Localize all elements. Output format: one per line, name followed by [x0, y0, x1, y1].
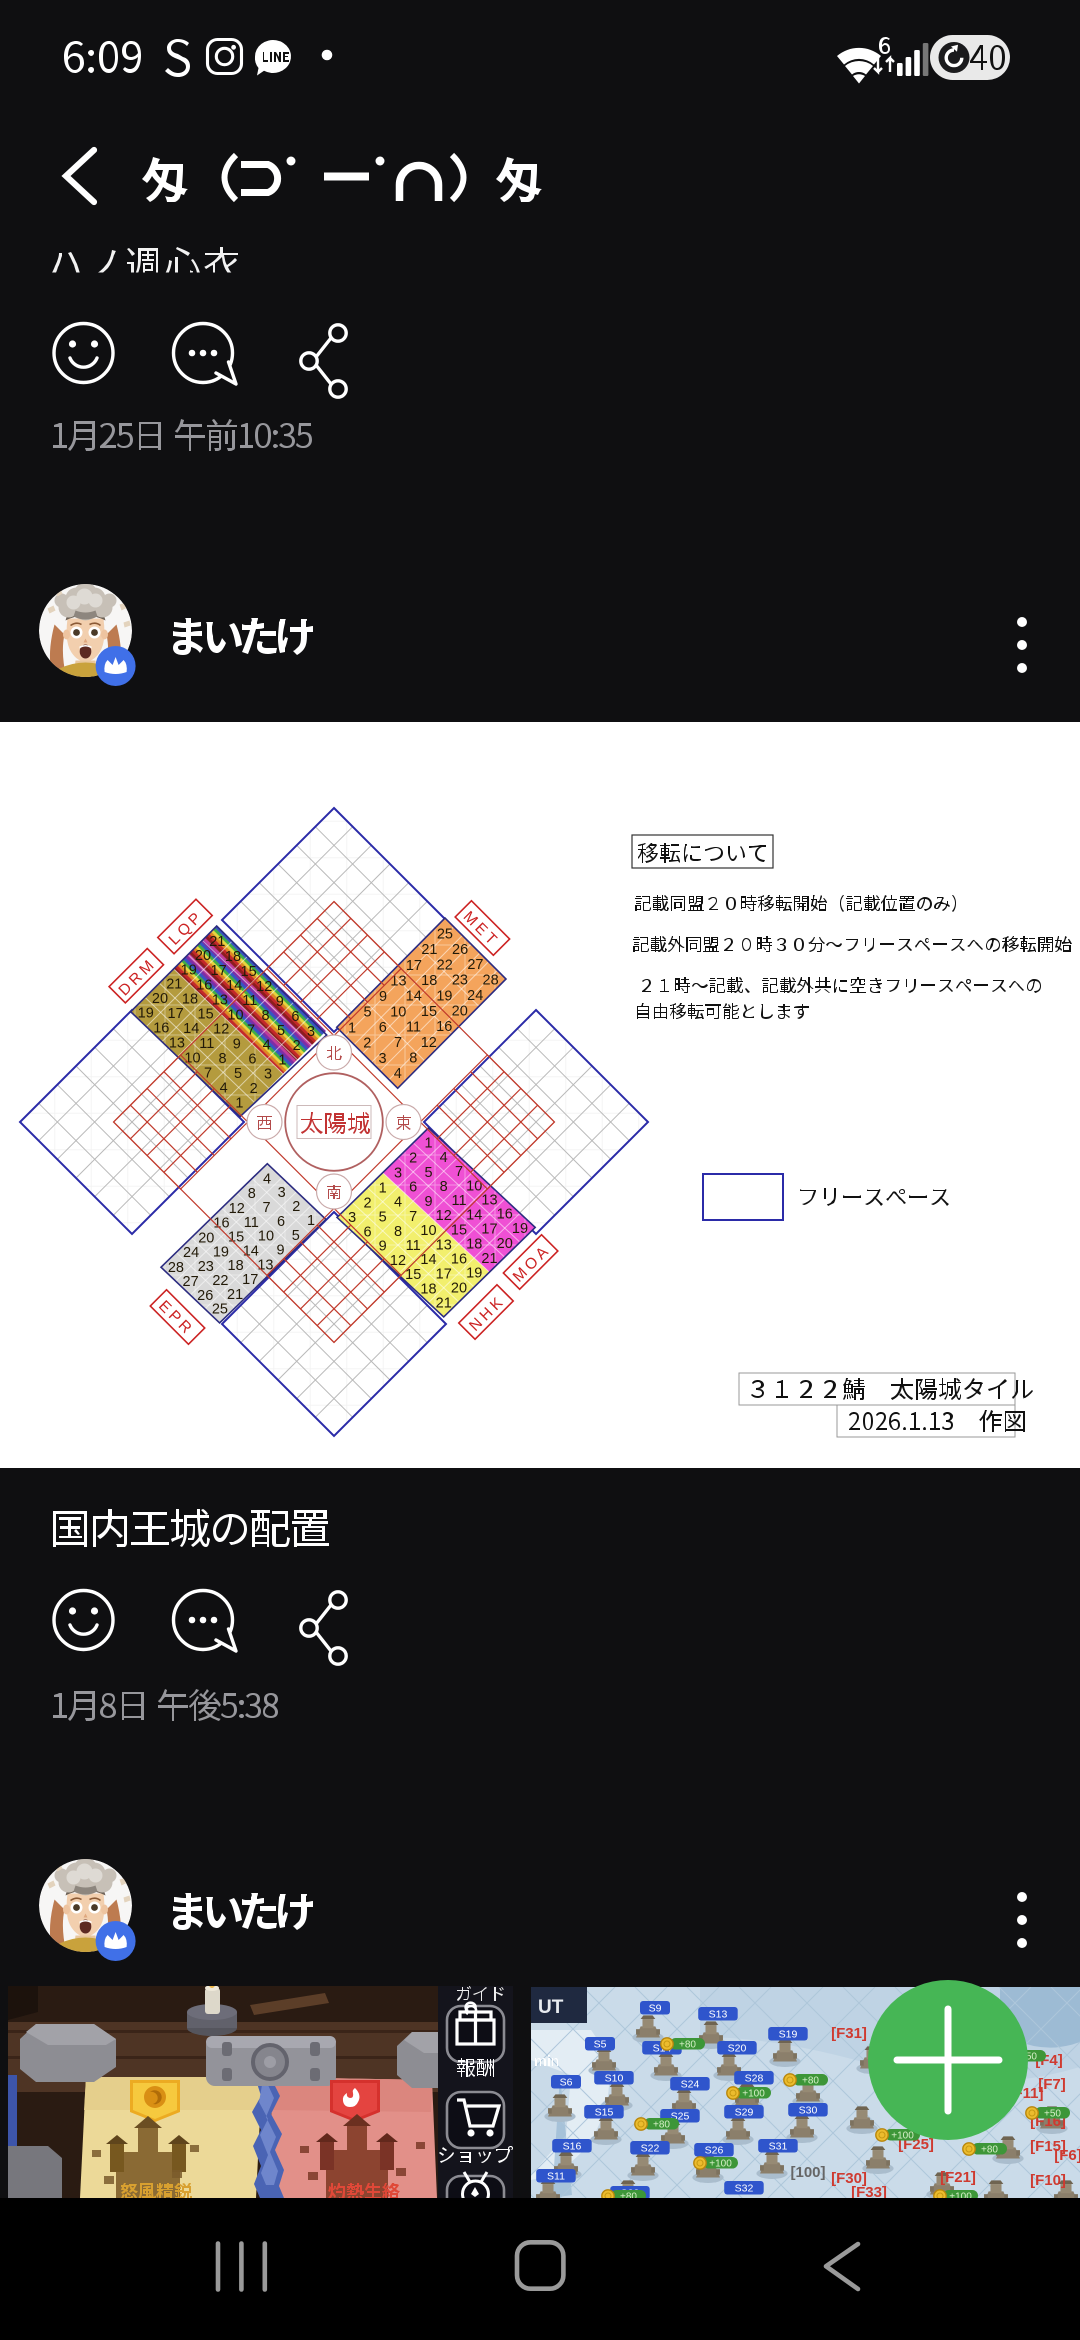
svg-text:13: 13	[390, 974, 406, 990]
svg-text:S31: S31	[769, 2141, 788, 2153]
svg-text:S15: S15	[595, 2107, 614, 2119]
svg-text:28: 28	[168, 1260, 184, 1276]
svg-text:17: 17	[436, 1266, 452, 1282]
svg-text:5: 5	[277, 1023, 285, 1039]
svg-text:S28: S28	[745, 2073, 764, 2085]
svg-text:1: 1	[307, 1213, 315, 1229]
svg-text:21: 21	[209, 934, 225, 950]
svg-text:16: 16	[196, 977, 212, 993]
svg-text:18: 18	[420, 1281, 436, 1297]
svg-text:2: 2	[292, 1199, 300, 1215]
svg-text:16: 16	[153, 1020, 169, 1036]
svg-text:S29: S29	[735, 2107, 754, 2119]
svg-text:11: 11	[242, 993, 257, 1009]
svg-text:22: 22	[437, 958, 453, 974]
svg-text:6: 6	[248, 1052, 256, 1068]
svg-text:4: 4	[263, 1171, 271, 1187]
svg-text:9: 9	[277, 1243, 285, 1259]
svg-text:1: 1	[348, 1020, 356, 1036]
svg-text:2: 2	[363, 1195, 371, 1211]
svg-text:10: 10	[420, 1223, 436, 1239]
svg-text:[100]: [100]	[790, 2164, 825, 2181]
svg-text:19: 19	[512, 1221, 528, 1237]
svg-text:5: 5	[234, 1066, 242, 1082]
svg-text:8: 8	[440, 1179, 448, 1195]
svg-text:18: 18	[228, 1258, 244, 1274]
svg-text:1: 1	[379, 1180, 387, 1196]
svg-text:16: 16	[451, 1252, 467, 1268]
svg-text:S11: S11	[547, 2171, 565, 2183]
svg-text:17: 17	[211, 963, 227, 979]
svg-text:S5: S5	[594, 2039, 607, 2051]
svg-text:21: 21	[436, 1296, 452, 1312]
svg-text:8: 8	[261, 1008, 269, 1024]
svg-text:26: 26	[197, 1288, 213, 1304]
svg-text:23: 23	[452, 973, 468, 989]
svg-text:2: 2	[293, 1038, 301, 1054]
svg-text:8: 8	[248, 1186, 256, 1202]
svg-text:S10: S10	[605, 2073, 624, 2085]
svg-text:18: 18	[182, 992, 198, 1008]
svg-text:19: 19	[138, 1005, 154, 1021]
svg-text:11: 11	[451, 1193, 466, 1209]
svg-text:S20: S20	[728, 2043, 747, 2055]
svg-text:S22: S22	[641, 2143, 660, 2155]
svg-text:12: 12	[436, 1208, 452, 1224]
svg-text:23: 23	[198, 1259, 214, 1275]
svg-text:S16: S16	[563, 2141, 582, 2153]
svg-text:S6: S6	[560, 2077, 573, 2089]
svg-text:21: 21	[166, 977, 182, 993]
svg-text:2: 2	[250, 1081, 258, 1097]
svg-text:S9: S9	[649, 2003, 662, 2015]
svg-text:3: 3	[307, 1024, 315, 1040]
svg-text:+100: +100	[709, 2159, 732, 2170]
svg-text:11: 11	[199, 1036, 214, 1052]
svg-text:20: 20	[497, 1236, 513, 1252]
svg-text:4: 4	[263, 1037, 271, 1053]
svg-text:9: 9	[233, 1037, 241, 1053]
svg-text:19: 19	[436, 988, 452, 1004]
svg-text:3: 3	[278, 1185, 286, 1201]
svg-text:7: 7	[262, 1200, 270, 1216]
svg-text:7: 7	[394, 1035, 402, 1051]
svg-text:24: 24	[183, 1245, 199, 1261]
svg-text:[F21]: [F21]	[940, 2169, 976, 2186]
svg-text:8: 8	[409, 1051, 417, 1067]
svg-text:16: 16	[497, 1207, 513, 1223]
svg-text:20: 20	[452, 1004, 468, 1020]
svg-text:4: 4	[394, 1195, 402, 1211]
svg-text:2: 2	[363, 1036, 371, 1052]
svg-text:+80: +80	[679, 2040, 696, 2051]
svg-text:5: 5	[424, 1165, 432, 1181]
svg-text:20: 20	[198, 1230, 214, 1246]
svg-text:26: 26	[452, 942, 468, 958]
svg-text:27: 27	[467, 957, 483, 973]
svg-text:14: 14	[406, 989, 422, 1005]
svg-text:6: 6	[379, 1020, 387, 1036]
svg-text:28: 28	[483, 972, 499, 988]
svg-text:S24: S24	[681, 2079, 700, 2091]
svg-text:15: 15	[228, 1230, 244, 1246]
svg-text:7: 7	[409, 1209, 417, 1225]
svg-text:5: 5	[363, 1005, 371, 1021]
svg-text:19: 19	[466, 1266, 482, 1282]
svg-text:17: 17	[242, 1272, 258, 1288]
svg-text:[F10]: [F10]	[1030, 2172, 1066, 2189]
svg-text:15: 15	[421, 1004, 437, 1020]
svg-text:15: 15	[198, 1007, 214, 1023]
svg-text:10: 10	[184, 1050, 200, 1066]
svg-text:11: 11	[406, 1020, 421, 1036]
svg-text:2: 2	[409, 1151, 417, 1167]
svg-text:3: 3	[264, 1067, 272, 1083]
svg-text:9: 9	[424, 1194, 432, 1210]
svg-text:13: 13	[212, 992, 228, 1008]
svg-text:10: 10	[390, 1004, 406, 1020]
svg-text:[F6]: [F6]	[1054, 2147, 1080, 2164]
svg-text:25: 25	[437, 927, 453, 943]
svg-text:4: 4	[394, 1066, 402, 1082]
svg-text:5: 5	[292, 1228, 300, 1244]
svg-text:9: 9	[379, 1239, 387, 1255]
svg-text:6: 6	[291, 1009, 299, 1025]
svg-text:9: 9	[379, 989, 387, 1005]
svg-text:7: 7	[247, 1022, 255, 1038]
svg-text:1: 1	[278, 1052, 286, 1068]
svg-text:5: 5	[379, 1210, 387, 1226]
svg-text:4: 4	[220, 1080, 228, 1096]
svg-text:6: 6	[409, 1180, 417, 1196]
svg-text:18: 18	[466, 1237, 482, 1253]
svg-text:+80: +80	[802, 2076, 819, 2087]
svg-text:1: 1	[235, 1095, 243, 1111]
svg-text:12: 12	[213, 1022, 229, 1038]
svg-text:14: 14	[466, 1207, 482, 1223]
svg-text:14: 14	[226, 978, 242, 994]
svg-text:20: 20	[152, 991, 168, 1007]
svg-text:15: 15	[241, 964, 257, 980]
svg-text:3: 3	[379, 1051, 387, 1067]
svg-text:8: 8	[218, 1051, 226, 1067]
svg-text:12: 12	[229, 1201, 245, 1217]
svg-text:22: 22	[212, 1273, 228, 1289]
svg-text:[F31]: [F31]	[831, 2025, 867, 2042]
svg-text:9: 9	[276, 994, 284, 1010]
svg-text:S30: S30	[799, 2105, 818, 2117]
svg-text:8: 8	[394, 1224, 402, 1240]
svg-text:S13: S13	[709, 2009, 728, 2021]
svg-text:18: 18	[421, 973, 437, 989]
svg-text:[F7]: [F7]	[1038, 2076, 1066, 2093]
svg-text:19: 19	[213, 1244, 229, 1260]
svg-text:13: 13	[481, 1193, 497, 1209]
svg-text:12: 12	[256, 979, 272, 995]
svg-text:17: 17	[406, 958, 422, 974]
svg-text:21: 21	[481, 1251, 497, 1267]
svg-text:25: 25	[212, 1302, 228, 1318]
svg-text:7: 7	[455, 1164, 463, 1180]
svg-text:15: 15	[451, 1222, 467, 1238]
svg-text:3: 3	[394, 1166, 402, 1182]
svg-text:20: 20	[451, 1281, 467, 1297]
svg-text:10: 10	[258, 1229, 274, 1245]
svg-text:4: 4	[440, 1150, 448, 1166]
svg-text:13: 13	[169, 1035, 185, 1051]
svg-text:27: 27	[183, 1274, 199, 1290]
svg-text:14: 14	[243, 1244, 259, 1260]
svg-text:13: 13	[436, 1237, 452, 1253]
svg-text:+50: +50	[1044, 2109, 1061, 2120]
svg-text:14: 14	[420, 1252, 436, 1268]
svg-text:+80: +80	[981, 2145, 998, 2156]
svg-text:20: 20	[195, 948, 211, 964]
svg-text:1: 1	[424, 1136, 432, 1152]
svg-text:14: 14	[183, 1021, 199, 1037]
svg-text:6: 6	[277, 1214, 285, 1230]
svg-text:21: 21	[421, 942, 437, 958]
svg-text:12: 12	[421, 1035, 437, 1051]
svg-text:S32: S32	[735, 2183, 754, 2195]
svg-text:+100: +100	[742, 2089, 765, 2100]
svg-text:+100: +100	[891, 2131, 914, 2142]
svg-text:18: 18	[225, 949, 241, 965]
svg-text:+80: +80	[653, 2120, 670, 2131]
svg-text:S19: S19	[779, 2029, 798, 2041]
svg-text:16: 16	[436, 1019, 452, 1035]
svg-text:19: 19	[181, 962, 197, 978]
svg-text:10: 10	[227, 1007, 243, 1023]
svg-text:S26: S26	[705, 2145, 724, 2157]
svg-text:17: 17	[481, 1222, 497, 1238]
svg-text:UT: UT	[538, 1997, 564, 2018]
svg-text:11: 11	[406, 1238, 421, 1254]
svg-text:24: 24	[467, 988, 483, 1004]
svg-text:11: 11	[244, 1215, 259, 1231]
svg-text:17: 17	[168, 1006, 184, 1022]
svg-text:21: 21	[227, 1287, 243, 1303]
